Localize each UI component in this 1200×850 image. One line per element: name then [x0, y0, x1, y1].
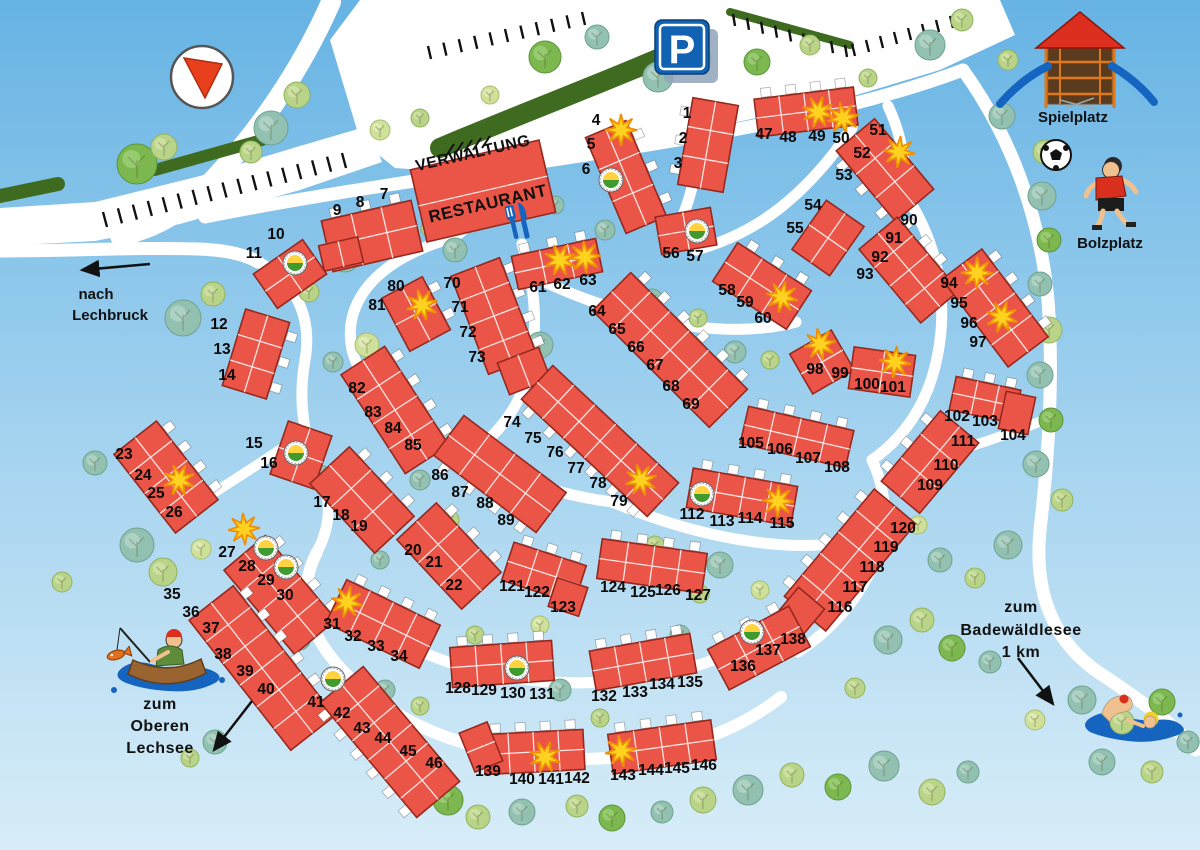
house-number-33: 33 — [367, 638, 385, 655]
tree — [410, 470, 430, 490]
house-number-111: 111 — [951, 433, 976, 450]
zum-oberen-lechsee-label: Lechsee — [126, 740, 194, 757]
house-number-9: 9 — [333, 202, 342, 219]
house-number-14: 14 — [218, 367, 236, 384]
tree — [591, 709, 609, 727]
splash-dot — [219, 677, 225, 683]
terrace — [595, 638, 606, 649]
terrace — [810, 81, 821, 91]
sun-marker — [605, 114, 637, 146]
tree — [566, 795, 588, 817]
house-number-19: 19 — [350, 518, 368, 535]
house-number-30: 30 — [276, 587, 293, 604]
spielplatz-label: Spielplatz — [1038, 109, 1108, 126]
resort-map-page: 1234567891011121314151617181920212223242… — [0, 0, 1200, 850]
house-number-15: 15 — [245, 435, 263, 452]
house-number-27: 27 — [218, 544, 235, 561]
house-number-55: 55 — [786, 220, 804, 237]
tree — [1023, 451, 1049, 477]
house-number-110: 110 — [933, 457, 958, 474]
house-number-71: 71 — [451, 299, 469, 316]
terrace — [457, 636, 468, 646]
tree — [761, 351, 779, 369]
park-logo-badge — [274, 555, 298, 579]
house-number-124: 124 — [600, 579, 626, 596]
house-number-83: 83 — [364, 404, 382, 421]
house-number-98: 98 — [806, 361, 824, 378]
house-number-77: 77 — [567, 460, 584, 477]
house-number-128: 128 — [445, 680, 471, 697]
house-number-138: 138 — [780, 631, 806, 648]
terrace — [785, 84, 796, 94]
house-number-50: 50 — [832, 130, 849, 147]
house-number-44: 44 — [374, 730, 392, 747]
house-number-40: 40 — [257, 681, 274, 698]
house-number-89: 89 — [497, 512, 515, 529]
house-number-118: 118 — [859, 559, 884, 576]
house-number-2: 2 — [679, 130, 688, 147]
tree — [733, 775, 763, 805]
tree — [370, 120, 390, 140]
tree — [149, 558, 177, 586]
park-logo-badge — [505, 656, 529, 680]
house-number-70: 70 — [443, 275, 460, 292]
house-number-139: 139 — [475, 763, 501, 780]
house-number-63: 63 — [579, 272, 597, 289]
terrace — [533, 631, 544, 641]
terrace — [620, 634, 631, 645]
house-number-87: 87 — [451, 484, 468, 501]
zum-badesee-label: zum — [1004, 599, 1038, 616]
tree — [707, 552, 733, 578]
house-number-29: 29 — [257, 572, 275, 589]
house-number-84: 84 — [384, 420, 402, 437]
terrace — [637, 534, 648, 544]
tree — [957, 761, 979, 783]
house-number-82: 82 — [348, 380, 365, 397]
tree — [928, 548, 952, 572]
terrace — [515, 722, 525, 732]
resort-map: 1234567891011121314151617181920212223242… — [0, 0, 1200, 850]
compass-icon — [171, 46, 233, 108]
park-logo-badge — [254, 536, 278, 560]
terrace — [575, 231, 587, 242]
house-number-122: 122 — [524, 584, 550, 601]
terrace — [810, 411, 822, 422]
house-number-56: 56 — [662, 245, 680, 262]
park-logo-badge — [284, 441, 308, 465]
house-number-41: 41 — [307, 694, 325, 711]
house-number-28: 28 — [238, 558, 256, 575]
house-number-17: 17 — [313, 494, 330, 511]
house-number-91: 91 — [885, 230, 903, 247]
tree — [1028, 272, 1052, 296]
house-number-88: 88 — [476, 495, 494, 512]
house-number-23: 23 — [115, 446, 133, 463]
house-number-76: 76 — [546, 444, 564, 461]
tree — [859, 69, 877, 87]
house-number-143: 143 — [610, 767, 636, 784]
tree — [998, 50, 1018, 70]
house-number-130: 130 — [500, 685, 526, 702]
tree — [845, 678, 865, 698]
park-logo-badge — [599, 168, 623, 192]
house-number-92: 92 — [871, 249, 888, 266]
terrace — [546, 237, 558, 248]
house-number-54: 54 — [804, 197, 822, 214]
house-number-90: 90 — [900, 212, 917, 229]
house-number-132: 132 — [591, 688, 617, 705]
terrace — [728, 464, 739, 475]
tree — [751, 581, 769, 599]
soccer-ball-icon — [1041, 140, 1071, 171]
house-number-75: 75 — [524, 430, 542, 447]
house-number-60: 60 — [754, 310, 771, 327]
house-number-137: 137 — [755, 642, 781, 659]
tree — [1177, 731, 1199, 753]
tree — [689, 309, 707, 327]
house-number-94: 94 — [940, 275, 958, 292]
terrace — [691, 711, 702, 721]
house-number-61: 61 — [529, 279, 547, 296]
tree — [585, 25, 609, 49]
house-number-36: 36 — [182, 604, 200, 621]
house-number-16: 16 — [260, 455, 278, 472]
tree — [1027, 362, 1053, 388]
tree — [1141, 761, 1163, 783]
terrace — [518, 243, 530, 254]
tree — [800, 35, 820, 55]
house-number-80: 80 — [387, 278, 404, 295]
tree — [724, 341, 746, 363]
house-number-125: 125 — [630, 584, 656, 601]
sun-marker — [961, 257, 994, 290]
tree — [874, 626, 902, 654]
house-number-46: 46 — [425, 755, 443, 772]
house-number-31: 31 — [323, 616, 341, 633]
house-number-141: 141 — [538, 771, 564, 788]
house-number-48: 48 — [779, 129, 797, 146]
house-number-6: 6 — [582, 161, 591, 178]
tree — [529, 41, 561, 73]
tree — [1149, 689, 1175, 715]
house-number-4: 4 — [592, 112, 601, 129]
house-number-116: 116 — [827, 599, 852, 616]
terrace — [835, 78, 846, 88]
house-number-86: 86 — [431, 467, 449, 484]
terrace — [962, 368, 974, 379]
house-number-65: 65 — [608, 321, 626, 338]
house-number-93: 93 — [856, 266, 874, 283]
tree — [284, 82, 310, 108]
tree — [165, 300, 201, 336]
terrace — [565, 720, 575, 730]
nach-lechbruck-label: nach — [78, 286, 113, 303]
terrace — [508, 633, 519, 643]
tree — [780, 763, 804, 787]
splash-dot — [1178, 713, 1183, 718]
tree — [744, 49, 770, 75]
house-number-59: 59 — [736, 294, 754, 311]
zum-oberen-lechsee-label: Oberen — [130, 718, 189, 735]
house-number-22: 22 — [445, 577, 462, 594]
house-number-38: 38 — [214, 646, 232, 663]
house-number-95: 95 — [950, 295, 968, 312]
house-number-20: 20 — [404, 542, 421, 559]
terrace — [482, 635, 493, 645]
park-logo-badge — [740, 620, 764, 644]
house-number-34: 34 — [390, 648, 408, 665]
house-number-123: 123 — [550, 599, 576, 616]
terrace — [663, 537, 674, 547]
house-number-114: 114 — [737, 510, 762, 527]
house-number-25: 25 — [147, 485, 165, 502]
house-number-47: 47 — [755, 126, 772, 143]
terrace — [640, 718, 651, 728]
terrace — [614, 722, 625, 732]
terrace — [754, 469, 765, 480]
tree — [151, 134, 177, 160]
tree — [915, 30, 945, 60]
tree — [690, 787, 716, 813]
zum-badesee-label: Badewäldlesee — [960, 622, 1081, 639]
house-number-105: 105 — [738, 435, 764, 452]
house-number-121: 121 — [499, 578, 525, 595]
tree — [481, 86, 499, 104]
house-number-136: 136 — [730, 658, 756, 675]
terrace — [540, 721, 550, 731]
tree — [52, 572, 72, 592]
house-number-5: 5 — [587, 136, 596, 153]
house-number-127: 127 — [685, 587, 711, 604]
house-number-64: 64 — [588, 303, 606, 320]
house-number-134: 134 — [649, 676, 675, 693]
terrace — [671, 625, 682, 636]
tree — [83, 451, 107, 475]
house-number-72: 72 — [459, 324, 476, 341]
house-number-13: 13 — [213, 341, 231, 358]
tree — [509, 799, 535, 825]
house-number-81: 81 — [368, 297, 386, 314]
house-number-74: 74 — [503, 414, 521, 431]
park-logo-badge — [283, 251, 307, 275]
tree — [965, 568, 985, 588]
terrace — [689, 541, 700, 551]
house-number-101: 101 — [880, 379, 906, 396]
house-number-21: 21 — [425, 554, 443, 571]
house-number-131: 131 — [529, 686, 555, 703]
tree — [910, 608, 934, 632]
house-number-117: 117 — [842, 579, 867, 596]
tree — [994, 531, 1022, 559]
house-number-96: 96 — [960, 315, 978, 332]
tree — [651, 801, 673, 823]
tree — [120, 528, 154, 562]
tree — [1089, 749, 1115, 775]
house-number-119: 119 — [873, 539, 898, 556]
tree — [951, 9, 973, 31]
house-number-107: 107 — [795, 450, 821, 467]
tree — [599, 805, 625, 831]
tree — [979, 651, 1001, 673]
house-number-140: 140 — [509, 771, 535, 788]
house-number-109: 109 — [917, 477, 943, 494]
tree — [254, 111, 288, 145]
house-number-8: 8 — [356, 194, 365, 211]
tree — [1051, 489, 1073, 511]
tree — [323, 352, 343, 372]
house-number-7: 7 — [380, 186, 389, 203]
house-number-129: 129 — [471, 682, 497, 699]
house-number-104: 104 — [1000, 427, 1026, 444]
tree — [466, 626, 484, 644]
house-number-52: 52 — [853, 145, 870, 162]
house-number-69: 69 — [682, 396, 700, 413]
house-number-35: 35 — [163, 586, 181, 603]
house-number-142: 142 — [564, 770, 590, 787]
house-number-99: 99 — [831, 365, 849, 382]
tree — [411, 697, 429, 715]
bolzplatz-label: Bolzplatz — [1077, 235, 1143, 252]
house-number-18: 18 — [332, 507, 350, 524]
terrace — [645, 629, 656, 640]
house-number-62: 62 — [553, 276, 570, 293]
house-number-43: 43 — [353, 720, 371, 737]
house-number-11: 11 — [246, 245, 263, 262]
house-number-79: 79 — [610, 493, 628, 510]
tree — [1068, 686, 1096, 714]
house-number-135: 135 — [677, 674, 703, 691]
house-number-58: 58 — [718, 282, 736, 299]
terrace — [1005, 377, 1017, 388]
house-number-12: 12 — [210, 316, 227, 333]
house-number-73: 73 — [468, 349, 486, 366]
house-number-133: 133 — [622, 684, 648, 701]
house-number-120: 120 — [890, 520, 916, 537]
terrace — [389, 193, 401, 204]
house-number-32: 32 — [344, 628, 361, 645]
tree — [825, 774, 851, 800]
house-number-78: 78 — [589, 475, 607, 492]
terrace — [780, 473, 791, 484]
house-number-115: 115 — [769, 515, 794, 532]
house-number-97: 97 — [969, 334, 986, 351]
house-number-45: 45 — [399, 743, 417, 760]
house-number-57: 57 — [686, 248, 703, 265]
park-logo-badge — [321, 667, 345, 691]
terrace — [984, 373, 996, 384]
zum-oberen-lechsee-label: zum — [143, 696, 177, 713]
tree — [919, 779, 945, 805]
zum-badesee-label: 1 km — [1002, 644, 1040, 661]
tree — [201, 282, 225, 306]
tree — [1039, 408, 1063, 432]
tree — [411, 109, 429, 127]
house-number-53: 53 — [835, 167, 853, 184]
house-number-42: 42 — [333, 705, 350, 722]
house-number-10: 10 — [267, 226, 284, 243]
terrace — [836, 417, 848, 428]
house-number-108: 108 — [824, 459, 850, 476]
terrace — [702, 460, 713, 471]
house-number-85: 85 — [404, 437, 422, 454]
nach-lechbruck-label: Lechbruck — [72, 307, 149, 324]
terrace — [783, 405, 795, 416]
park-logo-badge — [685, 219, 709, 243]
terrace — [666, 715, 677, 725]
tree — [869, 751, 899, 781]
house-number-112: 112 — [679, 506, 704, 523]
house-number-3: 3 — [674, 155, 683, 172]
house-number-37: 37 — [202, 620, 219, 637]
house-number-51: 51 — [869, 122, 887, 139]
house-number-68: 68 — [662, 378, 680, 395]
tree — [1028, 182, 1056, 210]
terrace — [760, 87, 771, 97]
tree — [443, 238, 467, 262]
house-number-146: 146 — [691, 757, 717, 774]
tree — [595, 220, 615, 240]
house-number-1: 1 — [683, 105, 692, 122]
house-number-24: 24 — [134, 467, 152, 484]
terrace — [611, 530, 622, 540]
splash-dot — [111, 687, 117, 693]
tree — [1037, 228, 1061, 252]
house-number-144: 144 — [638, 762, 664, 779]
house-number-66: 66 — [627, 339, 645, 356]
house-number-126: 126 — [655, 582, 681, 599]
tree — [240, 141, 262, 163]
tree — [466, 805, 490, 829]
terrace — [757, 399, 769, 410]
house-number-113: 113 — [709, 513, 734, 530]
tree — [191, 539, 211, 559]
house-number-145: 145 — [664, 760, 690, 777]
parking-sign-letter: P — [669, 28, 696, 72]
park-logo-badge — [690, 482, 714, 506]
house-number-26: 26 — [165, 504, 183, 521]
house-number-67: 67 — [646, 357, 663, 374]
house-number-100: 100 — [854, 376, 880, 393]
house-number-106: 106 — [767, 441, 793, 458]
house-number-39: 39 — [236, 663, 254, 680]
tree — [371, 551, 389, 569]
house-number-103: 103 — [972, 413, 998, 430]
house-number-49: 49 — [808, 128, 826, 145]
parking-sign: P — [655, 20, 718, 83]
house-number-102: 102 — [944, 408, 970, 425]
tree — [1025, 710, 1045, 730]
